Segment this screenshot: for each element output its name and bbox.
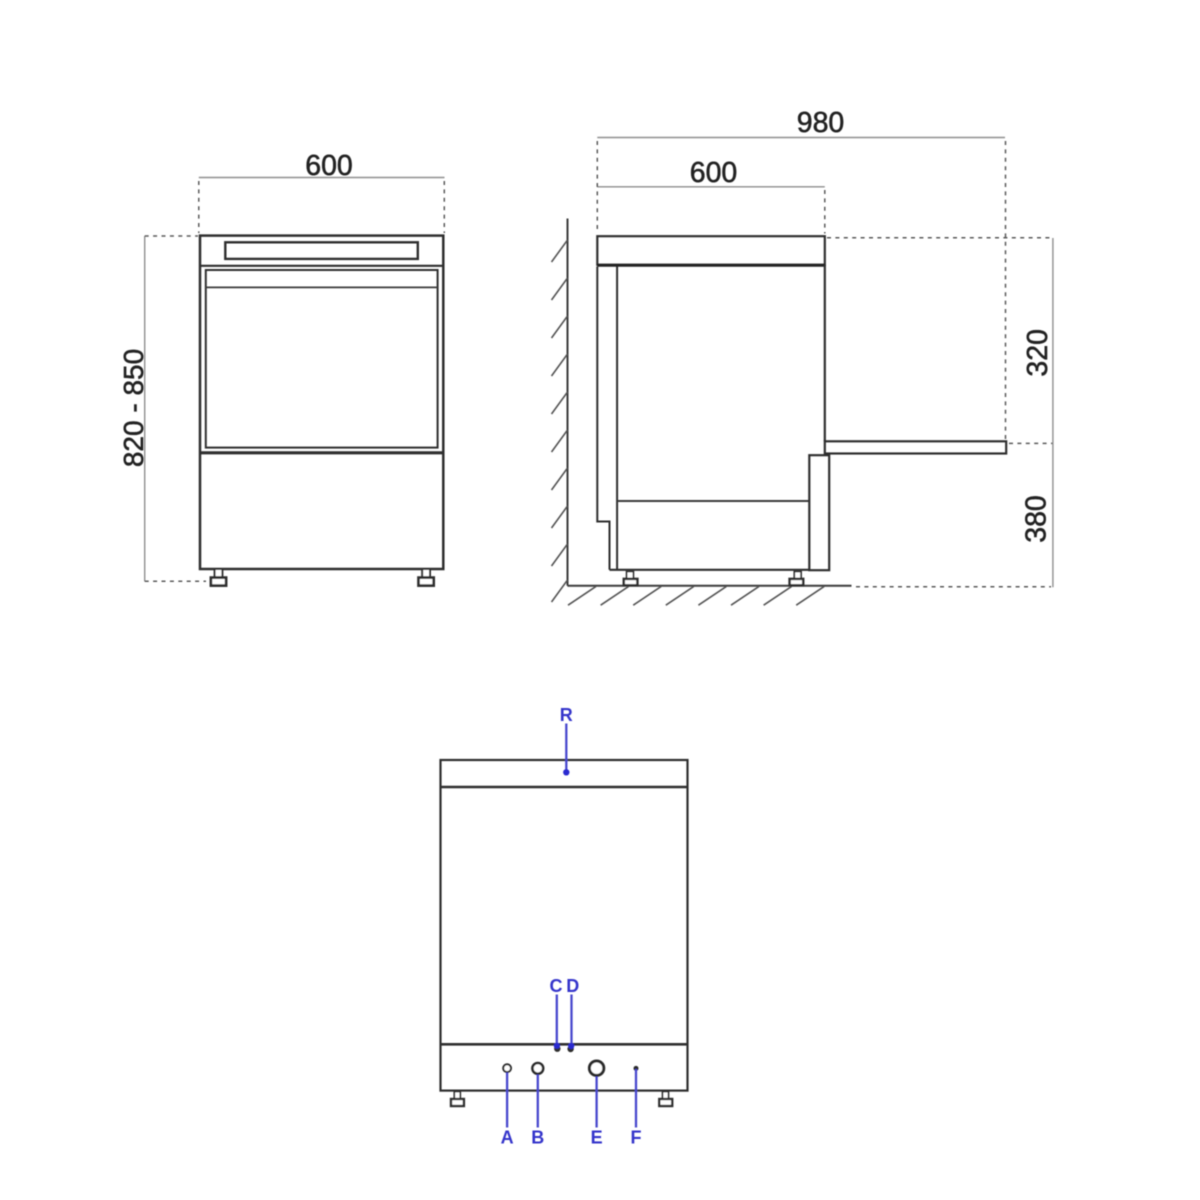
svg-text:320: 320 — [1022, 329, 1054, 377]
svg-text:B: B — [531, 1128, 544, 1148]
svg-text:A: A — [501, 1128, 514, 1148]
svg-text:380: 380 — [1021, 495, 1053, 543]
svg-text:820 - 850: 820 - 850 — [118, 349, 149, 467]
svg-text:980: 980 — [797, 107, 845, 139]
svg-text:F: F — [631, 1128, 642, 1148]
svg-text:R: R — [560, 705, 573, 725]
svg-text:D: D — [566, 976, 579, 996]
svg-text:600: 600 — [305, 150, 353, 182]
svg-text:600: 600 — [690, 157, 738, 189]
svg-text:E: E — [591, 1128, 603, 1148]
svg-text:C: C — [550, 976, 563, 996]
